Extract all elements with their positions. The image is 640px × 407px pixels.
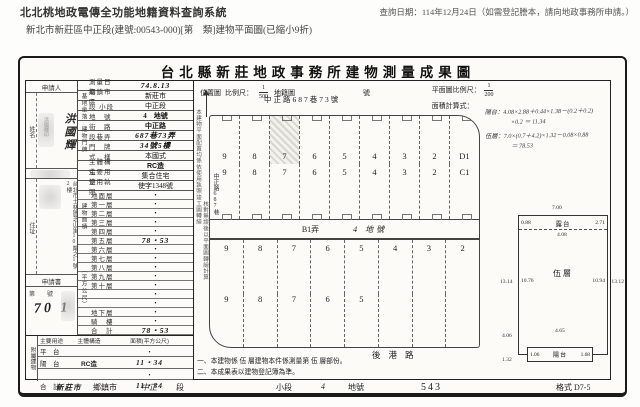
system-header: 北北桃地政電傳全功能地籍資料查詢系統 查詢日期：114年12月24日（如需登記謄…	[20, 4, 634, 36]
unit-row-1: 9 8 7 6 5 4 3 2 D1	[210, 116, 479, 164]
dim-left-outer: 13.14	[500, 279, 513, 285]
unit-cell: 3	[389, 116, 419, 164]
unit-cell: 4	[359, 164, 389, 219]
annex-area: 11・34	[106, 357, 193, 368]
footer-lot-value: 4	[321, 382, 325, 391]
unit-cell: 6	[310, 294, 344, 347]
query-date: 查詢日期：114年12月24日（如需登記謄本，請向地政事務所申請。）	[379, 6, 634, 18]
plan-scale-label: 平面圖比例尺：	[432, 86, 481, 94]
unit-row-2: 9 8 7 6 5 4 3 2 C1	[210, 164, 479, 219]
receipt-stamp	[61, 291, 75, 321]
unit-cell: 6	[310, 240, 344, 294]
document-footer: 新莊市 鄉鎮市 中正 段 小段 4 地號 543 格式 D7-5	[25, 380, 611, 394]
group-doorplate-label: 建物門牌	[79, 126, 88, 153]
street-bottom-label: 後港路	[372, 349, 422, 361]
field-value: 4 地號	[118, 111, 193, 121]
floor-label: 合 計	[78, 325, 118, 335]
applicant-label: 申請人	[26, 81, 77, 93]
application-label: 申請書	[26, 275, 77, 287]
footer-section-label: 段	[176, 382, 184, 393]
annex-use: 平 台	[38, 346, 72, 356]
footer-township-value: 新莊市	[56, 382, 82, 393]
transcription-note-2: 核對無誤後以平面圖轉繪計算	[201, 201, 209, 351]
area-calculation-formulas: 陽台：4.08×2.88＋0.44×1.38－(0.2＋0.2) ×0.2 ＝ …	[485, 106, 634, 152]
field-value: 使字1348號	[118, 181, 193, 191]
plan-scale-fraction: 1 200	[484, 83, 493, 98]
dim-balcony-width: 4.65	[555, 328, 565, 334]
survey-document: 台北縣新莊地政事務所建物測量成果圖 申請人 姓名 洪國輝 洪國輝印	[18, 56, 627, 397]
field-value: RC造	[118, 161, 193, 171]
unit-cell: 7	[269, 164, 299, 219]
sheet-number-label: 號	[363, 88, 370, 98]
form-row: 門 牌34號5樓	[78, 141, 193, 151]
applicant-column: 申請人 姓名 洪國輝 洪國輝印 住址 台北市士林區芝山里10鄰之1號2	[26, 81, 78, 335]
unit-cell: 8	[239, 164, 269, 219]
location-scale-label: 比例尺：	[225, 88, 253, 98]
lot-number-label: 4 地號	[353, 224, 387, 235]
unit-cell: 2	[419, 116, 449, 164]
survey-notes: 一、本建物係 伍 層建物本件係測量第 伍 層部份。 二、本成果表以建物登記簿為準…	[197, 357, 347, 378]
annex-header: 面積(平方公尺)	[106, 336, 193, 345]
unit-cell-block-label: D1	[449, 116, 479, 164]
unit-row-4: 9 8 7 6 5	[210, 294, 479, 347]
annex-area: ・	[106, 346, 193, 356]
dim-left-lower-2: 1.32	[502, 357, 512, 363]
form-row: 地 號4 地號	[78, 111, 193, 121]
note-line-2: 二、本成果表以建物登記簿為準。	[197, 368, 347, 379]
unit-row-3: 9 8 7 6 5 4 3 2	[210, 239, 479, 294]
form-fields: 基地坐落 建物門牌 建物面積 （平方公尺） 測量日期74.8.13 鄉鎮市區新莊…	[78, 81, 193, 335]
roof-terrace-strip: 0.88 露台 2.71	[519, 216, 607, 230]
alley-label: B1弄	[302, 224, 319, 235]
group-site-label: 基地坐落	[79, 93, 88, 120]
annex-group-label: 附屬建物	[26, 336, 38, 381]
field-value: 74.8.13	[118, 81, 193, 90]
unit-cell: 7	[269, 116, 299, 164]
unit-cell: 9	[210, 240, 243, 294]
footer-subsection-label: 小段	[276, 382, 292, 393]
footer-building-number: 543	[421, 382, 442, 393]
system-title: 北北桃地政電傳全功能地籍資料查詢系統	[20, 4, 227, 20]
seal-stamp	[30, 170, 70, 178]
document-identifier: 新北市新莊區中正段(建號:00543-000)[第 類]建物平面圖(已縮小9折)	[26, 22, 634, 36]
footer-township-label: 鄉鎮市	[93, 382, 117, 393]
north-arrow-icon	[206, 91, 207, 117]
unit-cell: 9	[210, 116, 239, 164]
terrace-label: 露台	[556, 218, 571, 228]
field-value: 新莊市	[118, 91, 193, 101]
form-row: 鄉鎮市區新莊市	[78, 91, 193, 101]
field-value: 34號5樓	[118, 140, 193, 151]
unit-cell: 5	[329, 164, 359, 219]
address-label: 住址	[26, 179, 37, 274]
name-label: 姓名	[26, 93, 37, 168]
annex-structure: RC造	[72, 358, 106, 368]
annex-header: 主體構造	[72, 336, 106, 345]
unit-cell: 8	[239, 116, 269, 164]
dim-right-inner: 10.94	[592, 278, 605, 284]
unit-cell: 7	[277, 240, 311, 294]
unit-cell: 6	[299, 164, 329, 219]
floor-row-total: 合 計78・53	[78, 326, 193, 335]
unit-cell: 6	[299, 116, 329, 164]
unit-cell: 5	[344, 240, 378, 294]
unit-cell	[445, 294, 479, 347]
document-body: 申請人 姓名 洪國輝 洪國輝印 住址 台北市士林區芝山里10鄰之1號2	[25, 80, 611, 380]
unit-cell: 2	[419, 164, 449, 219]
form-row: 段 小段中正段	[78, 101, 193, 111]
map-header: 位置圖 比例尺： 1 500 地籍圖 號 平面圖比例尺：	[198, 83, 608, 103]
annex-header: 主要用途	[38, 336, 72, 345]
dim-balcony-right: 1.68	[581, 352, 590, 358]
unit-cell: 8	[243, 240, 277, 294]
unit-cell: 7	[277, 294, 311, 347]
unit-cell: 2	[445, 240, 479, 294]
dim-terrace-width: 4.08	[557, 232, 567, 238]
dim-terrace-right: 2.71	[595, 220, 605, 226]
floor-area-total: 78・53	[118, 325, 193, 336]
dim-right-outer: 13.12	[611, 279, 624, 285]
address-stamp	[39, 185, 61, 209]
dim-balcony-left: 1.06	[530, 352, 539, 358]
footer-format-code: 格式 D7-5	[556, 382, 590, 393]
balcony-label: 陽台	[553, 350, 567, 359]
unit-cell: 3	[412, 240, 446, 294]
unit-cell	[412, 294, 446, 347]
unit-cell: 3	[389, 164, 419, 219]
unit-outline: 0.88 露台 2.71 4.08 10.76 伍層 10.94 4.65 1.…	[518, 215, 608, 355]
survey-form: 申請人 姓名 洪國輝 洪國輝印 住址 台北市士林區芝山里10鄰之1號2	[26, 81, 194, 379]
balcony-strip: 1.06 陽台 1.68	[527, 347, 593, 362]
unit-cell: 8	[243, 294, 277, 347]
footer-lot-label: 地號	[348, 382, 364, 393]
group-sqm-label: （平方公尺）	[79, 267, 88, 308]
annex-header-row: 主要用途 主體構造 面積(平方公尺)	[38, 336, 193, 346]
site-plan-area: 位置圖 比例尺： 1 500 地籍圖 號 平面圖比例尺：	[194, 81, 610, 379]
dim-terrace-left: 0.88	[521, 220, 531, 226]
street-annotation: 中正路687巷73號	[264, 94, 340, 105]
annex-row: ・	[38, 369, 193, 380]
footer-section-value: 中正	[141, 382, 157, 393]
unit-cell: 4	[378, 240, 412, 294]
name-stamp-text: 洪國輝印	[42, 117, 49, 137]
group-area-label: 建物面積	[79, 203, 88, 230]
alley-band: B1弄 4 地號	[210, 219, 479, 239]
dim-left-lower-1: 4.06	[502, 333, 512, 339]
field-value: 集合住宅	[118, 171, 193, 181]
unit-cell-block-label: C1	[449, 164, 479, 219]
annex-area: ・	[106, 369, 193, 379]
annex-table: 附屬建物 主要用途 主體構造 面積(平方公尺) 平 台 ・	[26, 335, 193, 381]
field-value: 本國式	[118, 151, 193, 161]
annex-row: 平 台 ・	[38, 346, 193, 357]
unit-cell: 5	[344, 294, 378, 347]
street-label-vertical: 中正路687巷	[211, 173, 220, 215]
scanned-document-page: 北北桃地政電傳全功能地籍資料查詢系統 查詢日期：114年12月24日（如需登記謄…	[0, 0, 640, 407]
unit-cell	[378, 294, 412, 347]
annex-use: 陽 台	[38, 358, 72, 368]
unit-cell: 9	[210, 294, 243, 347]
field-value: 中正路	[118, 121, 193, 131]
unit-floor-plan: 7.00 13.14 13.12 4.06 1.32 0.88 露台 2.71 …	[502, 205, 620, 377]
unit-cell: 4	[359, 116, 389, 164]
field-value: 中正段	[118, 101, 193, 111]
note-line-1: 一、本建物係 伍 層建物本件係測量第 伍 層部份。	[197, 357, 347, 368]
dim-top: 7.00	[552, 205, 562, 211]
unit-cell: 5	[329, 116, 359, 164]
annex-row: 陽 台 RC造 11・34	[38, 357, 193, 369]
receipt-section: 第 號 70 1	[26, 287, 77, 335]
building-outline: 9 8 7 6 5 4 3 2 D1 9 8 7 6	[209, 115, 480, 348]
